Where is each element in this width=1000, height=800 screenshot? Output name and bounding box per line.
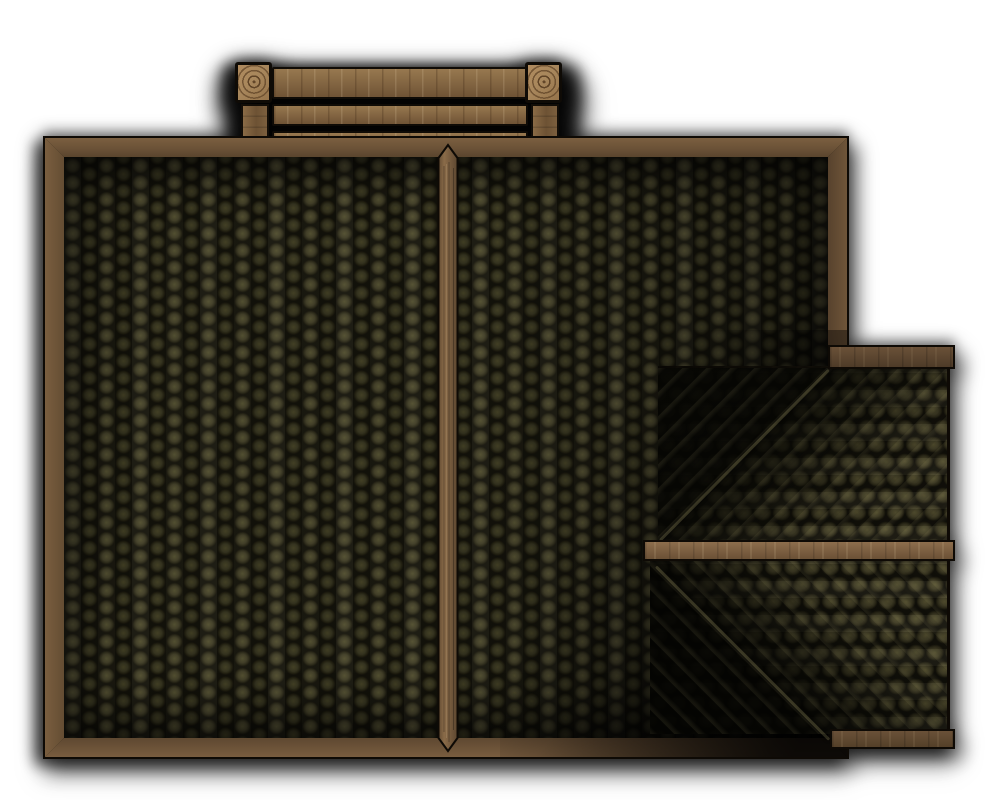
- roof-frame-left: [45, 138, 64, 757]
- extension-roof-lower: [650, 559, 950, 734]
- ridge-beam: [437, 144, 459, 752]
- roof-map-asset: [0, 0, 1000, 800]
- extension-roof-upper: [658, 366, 950, 543]
- extension-beam-bottom: [832, 731, 953, 747]
- hip-highlight-upper: [659, 369, 830, 542]
- asset-composition: [0, 0, 1000, 800]
- extension-beam-middle: [645, 542, 953, 559]
- balcony-post-log-end-right: [525, 62, 562, 103]
- balcony-plank-1: [272, 67, 528, 99]
- balcony-post-log-end-left: [235, 62, 272, 103]
- balcony-plank-2: [272, 104, 528, 126]
- extension-beam-top: [830, 347, 953, 367]
- hip-highlight-lower: [655, 565, 830, 740]
